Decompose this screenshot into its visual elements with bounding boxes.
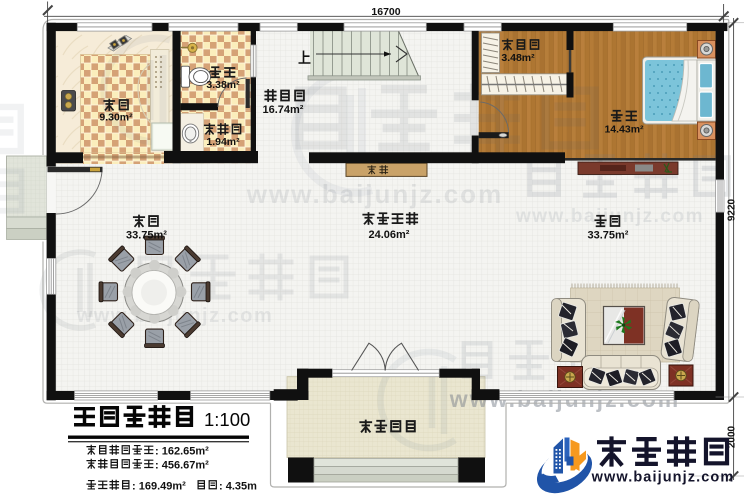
svg-text:: 456.67m²: : 456.67m² [155,460,209,472]
svg-text:9.30m²: 9.30m² [99,112,133,124]
svg-text:www.baijunjz.com: www.baijunjz.com [515,206,704,227]
svg-text:www.baijunjz.com: www.baijunjz.com [591,470,735,486]
svg-text:1.94m²: 1.94m² [206,136,240,148]
svg-text:1:100: 1:100 [204,409,250,430]
svg-text:3.38m²: 3.38m² [206,79,240,91]
svg-text:9220: 9220 [727,198,738,221]
svg-text:16700: 16700 [371,6,400,18]
svg-text:24.06m²: 24.06m² [369,229,410,241]
svg-text:: 4.35m: : 4.35m [219,481,257,493]
svg-text:: 162.65m²: : 162.65m² [155,446,209,458]
svg-text:www.baijunjz.com: www.baijunjz.com [246,179,503,209]
svg-text:16.74m²: 16.74m² [263,104,304,116]
svg-text:3.48m²: 3.48m² [501,52,535,64]
svg-text:33.75m²: 33.75m² [126,230,167,242]
svg-text:: 169.49m²: : 169.49m² [132,481,186,493]
svg-text:33.75m²: 33.75m² [588,230,629,242]
svg-text:14.43m²: 14.43m² [604,124,644,136]
